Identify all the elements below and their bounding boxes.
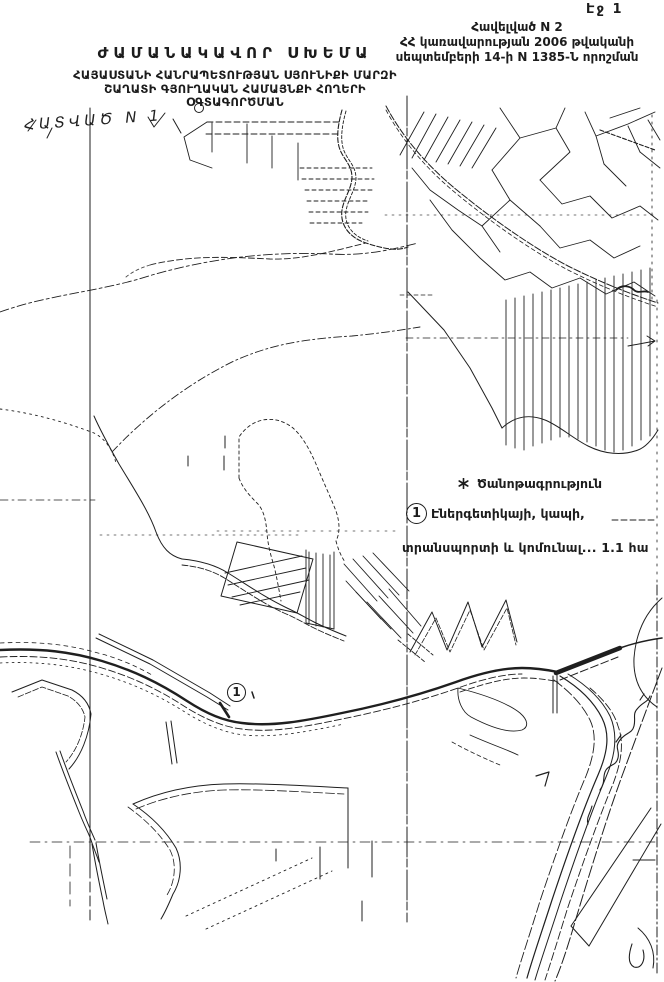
legend-item-marker: 1 [406,503,427,524]
legend-note-title: Ծանոթագրություն [477,476,602,491]
land-unit-outline [188,419,345,601]
contour-lines [0,243,420,641]
map-title: ԺԱՄԱՆԱԿԱՎՈՐ ՍԽԵՄԱ [52,44,418,62]
map-marker-1: 1 [227,681,246,702]
handwritten-annotation [587,694,650,824]
parcel-grid-top-left [126,110,408,277]
appendix-line-1: Հավելված N 2 [372,20,662,35]
map-title-block: ԺԱՄԱՆԱԿԱՎՈՐ ՍԽԵՄԱ ՀԱՅԱՍՏԱՆԻ ՀԱՆՐԱՊԵՏՈՒԹՅ… [52,44,418,110]
map-subtitle-2: ՇԱՂԱՏԻ ԳՅՈՒՂԱԿԱՆ ՀԱՄԱՅՆՔԻ ՀՈՂԵՐԻ [52,83,418,97]
bank-features [410,600,527,765]
legend-item-text-1: Էներգետիկայի, կապի, [431,506,585,521]
vineyard-strips [408,268,658,453]
parcel-mesh-top-right [386,106,660,307]
streams [12,680,177,924]
map-marker-digit: 1 [227,683,246,702]
legend-note-title-row: Ծանոթագրություն [405,476,655,492]
diagonal-road [516,674,621,980]
main-road [0,634,662,736]
grid-lines [0,96,657,975]
map-subtitle-1: ՀԱՅԱՍՏԱՆԻ ՀԱՆՐԱՊԵՏՈՒԹՅԱՆ ՍՅՈՒՆԻՔԻ ՄԱՐԶԻ [52,69,418,83]
hatched-parcels [221,542,433,662]
map-subtitle-3: ՕԳՏԱԳՈՐԾՄԱՆ [52,96,418,110]
legend-item-text-2: տրանսպորտի և կոմունալ... 1.1 հա [402,540,649,555]
bottom-left-features [128,784,372,929]
scan-artifacts [28,104,655,347]
page-number: Էջ 1 [586,2,624,17]
scanned-map-page: Էջ 1 Հավելված N 2 ՀՀ կառավարության 2006 … [0,0,664,982]
legend-item-row-1: 1 Էներգետիկայի, կապի, [406,503,585,524]
asterisk-icon [458,477,469,492]
